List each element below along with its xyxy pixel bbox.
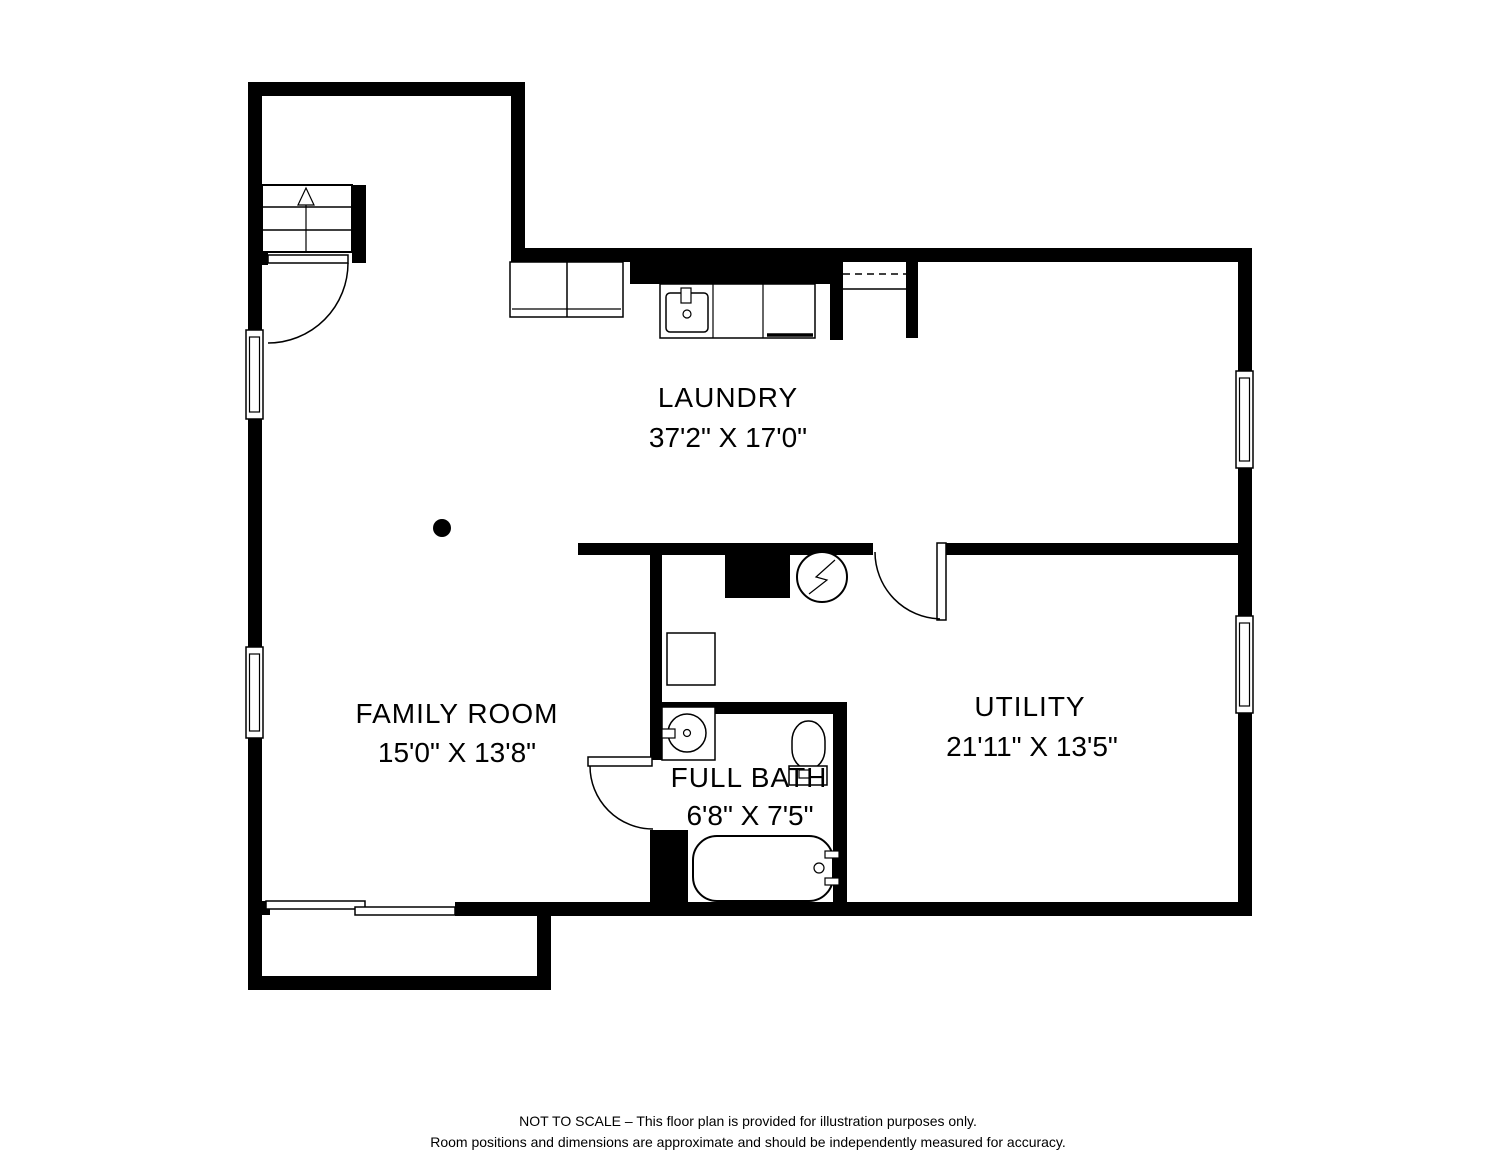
- wall-closet-end: [906, 262, 918, 338]
- room-dims-laundry: 37'2" X 17'0": [649, 422, 807, 453]
- door-leaf: [268, 255, 348, 263]
- furnace-icon: [667, 633, 715, 685]
- slider-panel: [355, 907, 455, 915]
- disclaimer-line-2: Room positions and dimensions are approx…: [430, 1134, 1066, 1150]
- support-column-icon: [433, 519, 451, 537]
- wall-door-jamb-block: [248, 252, 268, 265]
- wall-left: [248, 82, 262, 990]
- window-frame: [246, 330, 263, 419]
- tub-handle-icon: [825, 851, 839, 858]
- room-label-family-room: FAMILY ROOM: [356, 698, 559, 729]
- washer-dryer: [510, 262, 623, 317]
- door-leaf: [937, 543, 946, 620]
- sink-faucet-icon: [681, 288, 691, 303]
- wall-laundry-soffit: [630, 248, 843, 284]
- stairs: [262, 185, 352, 252]
- bathtub-icon: [693, 836, 833, 901]
- laundry-counter: [660, 284, 815, 338]
- window-frame: [1236, 371, 1253, 468]
- wall-counter-end: [830, 262, 843, 340]
- wall-stair-side-block: [352, 185, 366, 263]
- wall-bath-left-block: [650, 830, 688, 916]
- wall-patio-bottom: [248, 976, 550, 990]
- wall-stairwell-right: [511, 82, 525, 262]
- floor-plan: LAUNDRY 37'2" X 17'0" FAMILY ROOM 15'0" …: [0, 0, 1500, 1159]
- window-frame: [246, 647, 263, 738]
- wall-laundry-top: [511, 248, 1252, 262]
- window-right-upper: [1236, 371, 1253, 468]
- window-right-lower: [1236, 616, 1253, 713]
- tub-handle-icon: [825, 878, 839, 885]
- room-label-laundry: LAUNDRY: [658, 382, 798, 413]
- vanity-sink: [662, 707, 715, 760]
- bathtub: [693, 836, 839, 901]
- wall-divider-right: [941, 543, 1252, 555]
- water-heater-icon: [797, 552, 847, 602]
- room-dims-utility: 21'11" X 13'5": [946, 731, 1118, 762]
- wall-bath-hall: [650, 543, 662, 760]
- water-heater: [797, 552, 847, 602]
- disclaimer-line-1: NOT TO SCALE – This floor plan is provid…: [519, 1113, 977, 1129]
- wall-bottom: [455, 902, 1252, 916]
- chimney-block: [725, 552, 790, 598]
- wall-top-left-top: [248, 82, 525, 96]
- wall-right: [1238, 248, 1252, 916]
- room-dims-full-bath: 6'8" X 7'5": [686, 800, 813, 831]
- window-left-lower: [246, 647, 263, 738]
- room-dims-family-room: 15'0" X 13'8": [378, 737, 536, 768]
- window-frame: [1236, 616, 1253, 713]
- slider-panel: [266, 901, 365, 909]
- sink-faucet-icon: [662, 729, 675, 738]
- door-leaf: [588, 757, 652, 766]
- room-label-utility: UTILITY: [974, 691, 1085, 722]
- wall-patio-right: [537, 902, 551, 990]
- window-left-upper: [246, 330, 263, 419]
- room-label-full-bath: FULL BATH: [671, 762, 828, 793]
